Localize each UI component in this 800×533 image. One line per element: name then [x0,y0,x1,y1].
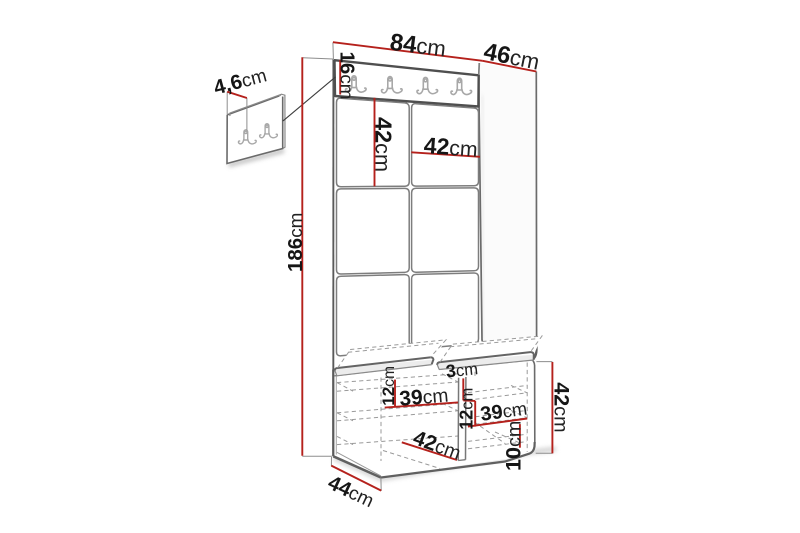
svg-text:12cm: 12cm [379,366,398,406]
svg-text:39cm: 39cm [398,384,449,411]
svg-text:12cm: 12cm [457,388,477,430]
svg-text:42cm: 42cm [371,117,397,172]
svg-text:42cm: 42cm [550,382,574,432]
svg-text:186cm: 186cm [284,213,307,272]
svg-text:10cm: 10cm [502,421,526,471]
svg-text:16cm: 16cm [336,52,359,100]
svg-text:3cm: 3cm [445,358,479,381]
